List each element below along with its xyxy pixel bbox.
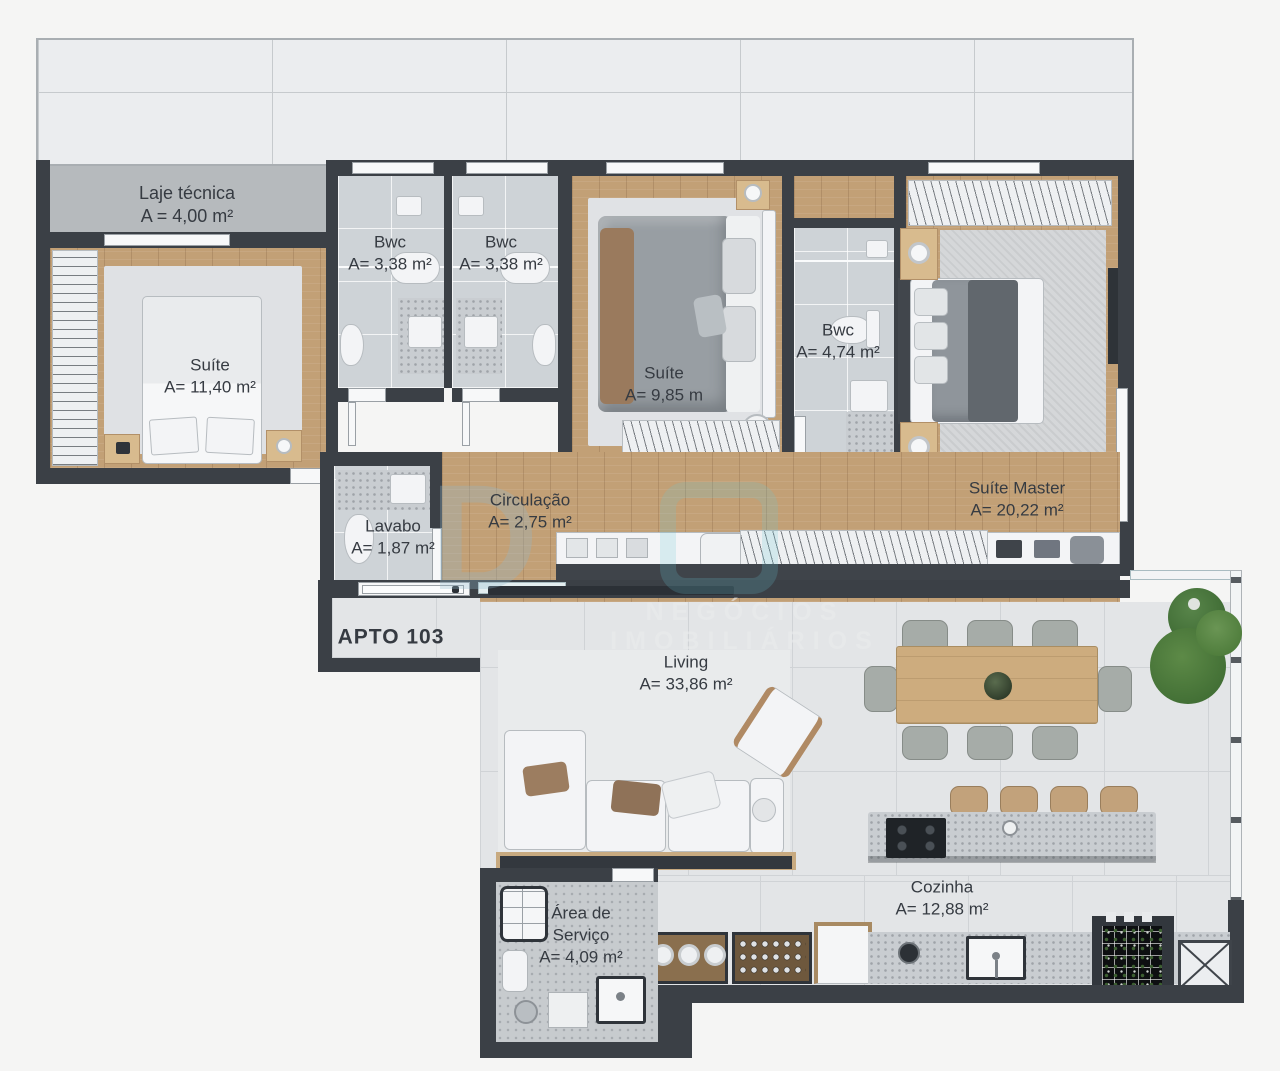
sofa-pillow-brown xyxy=(522,761,570,797)
window-suite-2 xyxy=(606,162,724,174)
side-table xyxy=(752,798,776,822)
laundry-basket xyxy=(514,1000,538,1024)
lavabo-sink xyxy=(390,474,426,504)
room-label-lavabo: Lavabo A= 1,87 m² xyxy=(351,515,435,559)
watermark-subtitle: NEGÓCIOS IMOBILIÁRIOS xyxy=(505,598,985,656)
suite-2-pillow xyxy=(722,238,756,294)
dining-chair xyxy=(864,666,898,712)
suite-master-wardrobe xyxy=(908,180,1112,226)
table-centerpiece-plant xyxy=(984,672,1012,700)
room-name: Lavabo xyxy=(351,515,435,537)
blender xyxy=(898,942,920,964)
bwc-1-door xyxy=(348,388,386,402)
room-label-suite-1: Suíte A= 11,40 m² xyxy=(164,354,256,398)
room-area: A= 2,75 m² xyxy=(488,511,572,533)
shaft-tab xyxy=(1106,912,1116,922)
room-label-suite-2: Suíte A= 9,85 m xyxy=(625,362,703,406)
wall-lavabo-left xyxy=(320,452,334,600)
bwc-1-door-leaf xyxy=(348,402,356,446)
bwc-3-vestibule xyxy=(794,176,894,222)
dining-chair xyxy=(902,726,948,760)
room-label-bwc-3: Bwc A= 4,74 m² xyxy=(796,319,880,363)
bwc-3-sink xyxy=(850,380,888,412)
bwc-1-shower-head xyxy=(396,196,422,216)
room-label-circulacao: Circulação A= 2,75 m² xyxy=(488,489,572,533)
bwc-2-shower-head xyxy=(458,196,484,216)
bwc-2-door-leaf xyxy=(462,402,470,446)
suite-master-pillow xyxy=(914,288,948,316)
room-area: A= 3,38 m² xyxy=(348,253,432,275)
room-name: Laje técnica xyxy=(139,182,235,205)
apartment-number: APTO 103 xyxy=(338,625,445,652)
window-bwc-1 xyxy=(352,162,434,174)
room-area: A= 33,86 m² xyxy=(639,673,732,695)
terrace-slab xyxy=(36,38,1134,166)
bwc-3-shower-head xyxy=(866,240,888,258)
window-bwc-2 xyxy=(466,162,548,174)
tank-faucet xyxy=(616,992,625,1001)
wall-suite2-right xyxy=(782,160,794,476)
bwc-2-door xyxy=(462,388,500,402)
room-label-laje-tecnica: Laje técnica A = 4,00 m² xyxy=(139,182,235,228)
room-name: Suíte xyxy=(625,362,703,384)
room-name: Cozinha xyxy=(895,876,988,898)
bwc-1-toilet xyxy=(340,324,364,366)
wall-lavabo-top xyxy=(320,452,442,466)
dining-chair xyxy=(967,726,1013,760)
room-name: Área de Serviço xyxy=(531,902,631,946)
room-name: Living xyxy=(639,651,732,673)
room-name: Bwc xyxy=(796,319,880,341)
room-label-living: Living A= 33,86 m² xyxy=(639,651,732,695)
corner-plant-flower xyxy=(1188,598,1200,610)
servico-table xyxy=(548,992,588,1028)
room-label-bwc-2: Bwc A= 3,38 m² xyxy=(459,231,543,275)
suite-master-pillow xyxy=(914,322,948,350)
shaft-tab xyxy=(1124,912,1134,922)
room-label-cozinha: Cozinha A= 12,88 m² xyxy=(895,876,988,920)
bwc-2-toilet xyxy=(532,324,556,366)
window-suite-1 xyxy=(104,234,230,246)
room-label-bwc-1: Bwc A= 3,38 m² xyxy=(348,231,432,275)
watermark-glyph xyxy=(660,482,778,594)
bwc-3-shower-glass xyxy=(794,260,894,262)
soap-bottle xyxy=(502,950,528,992)
room-name: Bwc xyxy=(459,231,543,253)
suite-1-pillow xyxy=(205,417,255,455)
sofa-pillow-brown xyxy=(610,780,661,817)
suite-master-runner xyxy=(968,280,1018,422)
counter-faucet xyxy=(992,952,1000,960)
wall-entry-bottom xyxy=(318,656,494,672)
suite-1-pillow xyxy=(149,416,199,455)
room-name: Suíte Master xyxy=(969,477,1065,499)
kitchen-counter xyxy=(868,932,1230,984)
dining-chair xyxy=(1032,726,1078,760)
room-name: Bwc xyxy=(348,231,432,253)
glass-wall-top xyxy=(1130,570,1234,580)
suite-master-tv-panel xyxy=(1108,268,1118,364)
sideboard-drawer xyxy=(596,538,618,558)
room-name: Circulação xyxy=(488,489,572,511)
suite-2-pillow xyxy=(722,306,756,362)
room-area: A= 11,40 m² xyxy=(164,376,256,398)
room-area: A= 20,22 m² xyxy=(969,499,1065,521)
suite-2-closet xyxy=(622,420,780,456)
room-area: A = 4,00 m² xyxy=(139,205,235,228)
bwc-1-sink xyxy=(408,316,442,348)
sideboard-item xyxy=(1034,540,1060,558)
room-area: A= 4,74 m² xyxy=(796,341,880,363)
plate xyxy=(704,944,726,966)
wall-bwc2-right xyxy=(558,160,572,472)
room-area: A= 1,87 m² xyxy=(351,537,435,559)
wall-bwc-divider xyxy=(444,176,452,388)
wall-left-outer xyxy=(36,160,50,484)
room-area: A= 9,85 m xyxy=(625,384,703,406)
dining-chair xyxy=(1098,666,1132,712)
counter-faucet-stem xyxy=(995,960,998,978)
wall-suite1-right xyxy=(326,160,338,484)
servico-door xyxy=(612,868,654,882)
window-suite-master xyxy=(928,162,1040,174)
plate xyxy=(678,944,700,966)
cooktop xyxy=(886,818,946,858)
suite-1-wardrobe xyxy=(52,250,98,466)
wall-servico-bottom xyxy=(480,1042,692,1058)
sideboard-drawer xyxy=(626,538,648,558)
corner-plant-leaf xyxy=(1196,610,1242,656)
floor-plan: D NEGÓCIOS IMOBILIÁRIOS Laje técnica A =… xyxy=(0,0,1280,1071)
room-label-suite-master: Suíte Master A= 20,22 m² xyxy=(969,477,1065,521)
wall-servico-left xyxy=(480,868,496,1058)
sideboard-bag xyxy=(1070,536,1104,564)
room-area: A= 4,09 m² xyxy=(531,946,631,968)
shaft-plant-grid xyxy=(1102,926,1162,992)
room-area: A= 12,88 m² xyxy=(895,898,988,920)
sideboard-item xyxy=(996,540,1022,558)
suite-2-lamp-top xyxy=(744,184,762,202)
bwc-2-sink xyxy=(464,316,498,348)
shaft-tab xyxy=(1142,912,1152,922)
suite-master-pillow xyxy=(914,356,948,384)
room-area: A= 3,38 m² xyxy=(459,253,543,275)
room-name: Suíte xyxy=(164,354,256,376)
wall-kitchen-bottom xyxy=(692,985,1244,1003)
room-label-area-servico: Área de Serviço A= 4,09 m² xyxy=(531,902,631,967)
suite-master-lamp xyxy=(908,242,930,264)
glasses-grid xyxy=(738,938,806,978)
island-sink xyxy=(1002,820,1018,836)
duct-box xyxy=(1178,940,1232,990)
suite-1-nightstand-item xyxy=(116,442,130,454)
suite-2-headboard xyxy=(762,210,776,418)
wall-bwc3-top xyxy=(794,218,894,228)
counter-cabinet xyxy=(814,922,872,984)
suite-1-lamp xyxy=(276,438,292,454)
